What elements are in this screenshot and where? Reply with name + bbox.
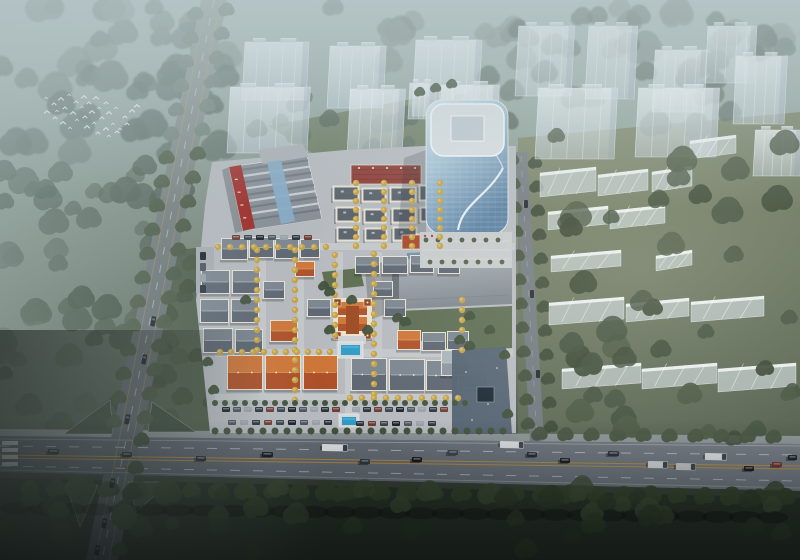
architectural-rendering-canvas: [0, 0, 800, 560]
aerial-rendering-stage: [0, 0, 800, 560]
atmosphere-overlays: [0, 0, 800, 560]
